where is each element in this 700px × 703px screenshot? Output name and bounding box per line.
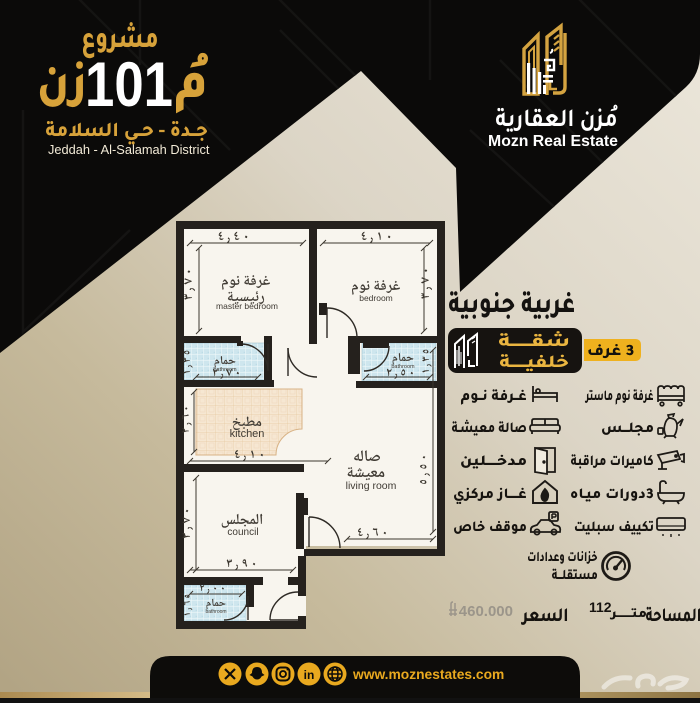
svg-text:Mozn Real Estate: Mozn Real Estate: [488, 133, 618, 150]
svg-text:kitchen: kitchen: [230, 428, 265, 440]
svg-text:council: council: [227, 527, 258, 538]
svg-text:master bedroom: master bedroom: [216, 301, 278, 311]
svg-text:living room: living room: [346, 480, 397, 492]
svg-text:bathroom: bathroom: [205, 609, 226, 615]
svg-text:bathroom: bathroom: [391, 364, 415, 370]
svg-text:112: 112: [589, 599, 612, 615]
svg-text:460.000: 460.000: [459, 603, 513, 620]
svg-text:bedroom: bedroom: [359, 293, 393, 303]
svg-text:101: 101: [85, 50, 173, 120]
svg-text:in: in: [304, 668, 315, 682]
svg-text:www.moznestates.com: www.moznestates.com: [352, 667, 504, 682]
svg-text:Jeddah - Al-Salamah District: Jeddah - Al-Salamah District: [48, 142, 210, 157]
svg-text:bathroom: bathroom: [213, 367, 237, 373]
